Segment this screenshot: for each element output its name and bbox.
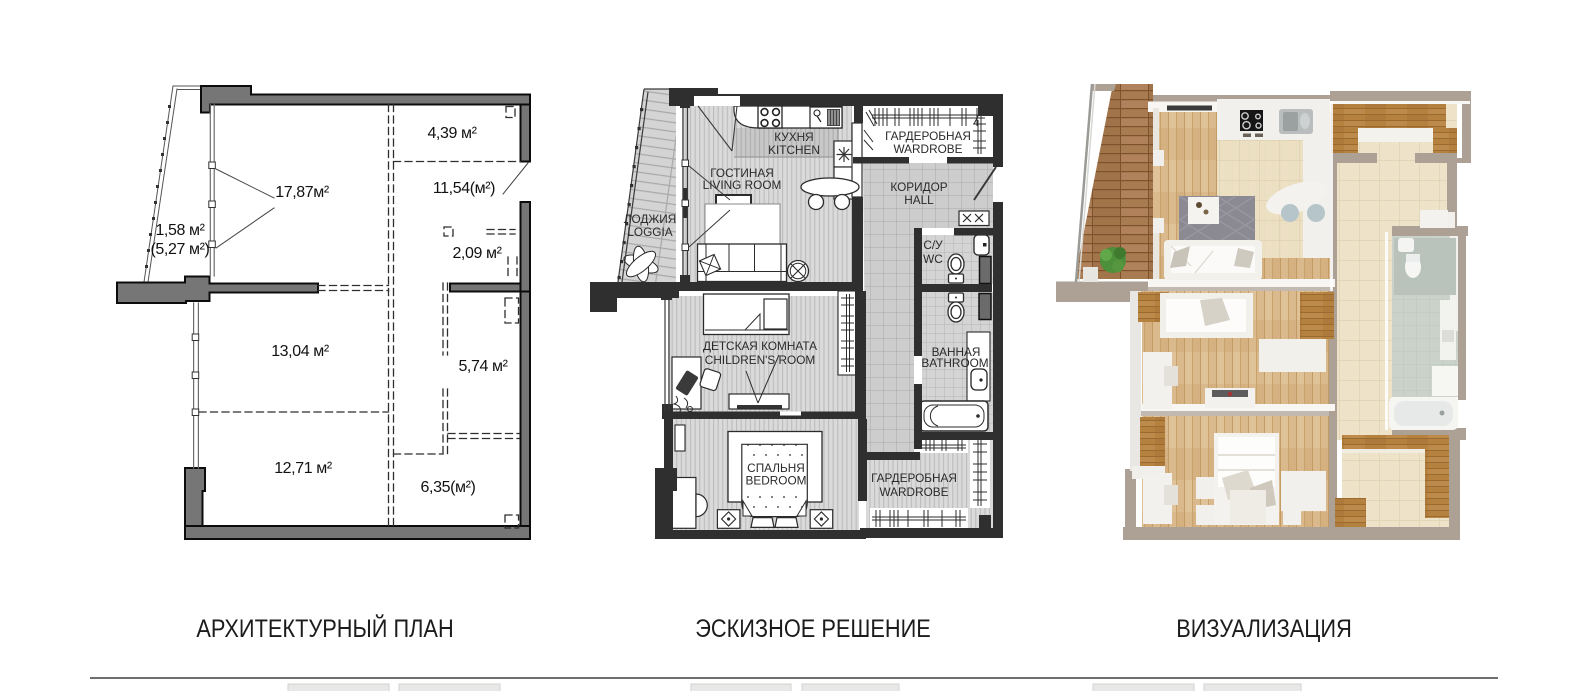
svg-text:11,54(м²): 11,54(м²): [433, 180, 495, 197]
svg-text:КОРИДОР: КОРИДОР: [890, 180, 947, 194]
svg-text:1,58 м²: 1,58 м²: [155, 222, 205, 239]
svg-text:BATHROOM: BATHROOM: [921, 356, 988, 370]
svg-text:WARDROBE: WARDROBE: [879, 485, 948, 499]
svg-text:ГАРДЕРОБНАЯ: ГАРДЕРОБНАЯ: [871, 471, 957, 485]
svg-text:LOGGIA: LOGGIA: [627, 225, 672, 239]
svg-text:17,87м²: 17,87м²: [275, 184, 330, 201]
svg-text:BEDROOM: BEDROOM: [746, 474, 807, 488]
svg-text:WC: WC: [923, 252, 943, 266]
svg-text:С/У: С/У: [923, 238, 943, 252]
svg-text:ЛОДЖИЯ: ЛОДЖИЯ: [624, 212, 677, 226]
svg-text:(5,27 м²): (5,27 м²): [151, 241, 210, 258]
svg-text:13,04 м²: 13,04 м²: [271, 343, 330, 360]
svg-text:5,74 м²: 5,74 м²: [458, 358, 508, 375]
svg-text:HALL: HALL: [904, 193, 934, 207]
svg-text:WARDROBE: WARDROBE: [893, 142, 962, 156]
svg-text:ГАРДЕРОБНАЯ: ГАРДЕРОБНАЯ: [885, 129, 971, 143]
svg-text:CHILDREN'S ROOM: CHILDREN'S ROOM: [705, 353, 815, 367]
svg-text:KITCHEN: KITCHEN: [768, 143, 820, 157]
svg-text:LIVING ROOM: LIVING ROOM: [703, 178, 782, 192]
svg-text:4,39 м²: 4,39 м²: [427, 125, 477, 142]
svg-text:ДЕТСКАЯ КОМНАТА: ДЕТСКАЯ КОМНАТА: [703, 339, 817, 353]
svg-text:6,35(м²): 6,35(м²): [421, 479, 476, 496]
svg-text:2,09 м²: 2,09 м²: [452, 245, 502, 262]
svg-text:12,71 м²: 12,71 м²: [274, 460, 333, 477]
svg-text:КУХНЯ: КУХНЯ: [774, 130, 813, 144]
